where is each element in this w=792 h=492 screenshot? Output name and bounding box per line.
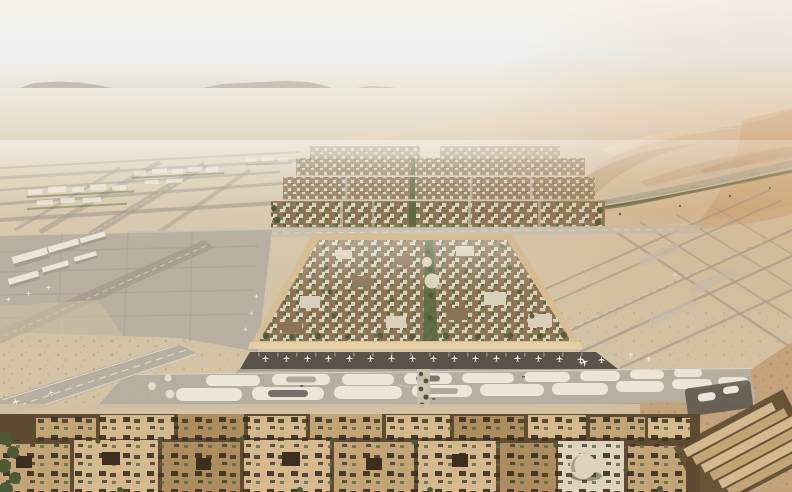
- city-block-row-back: [36, 414, 690, 440]
- scene: Aerial rendering of a vast desert airpor…: [0, 0, 792, 492]
- rendering-canvas: Aerial rendering of a vast desert airpor…: [0, 0, 792, 492]
